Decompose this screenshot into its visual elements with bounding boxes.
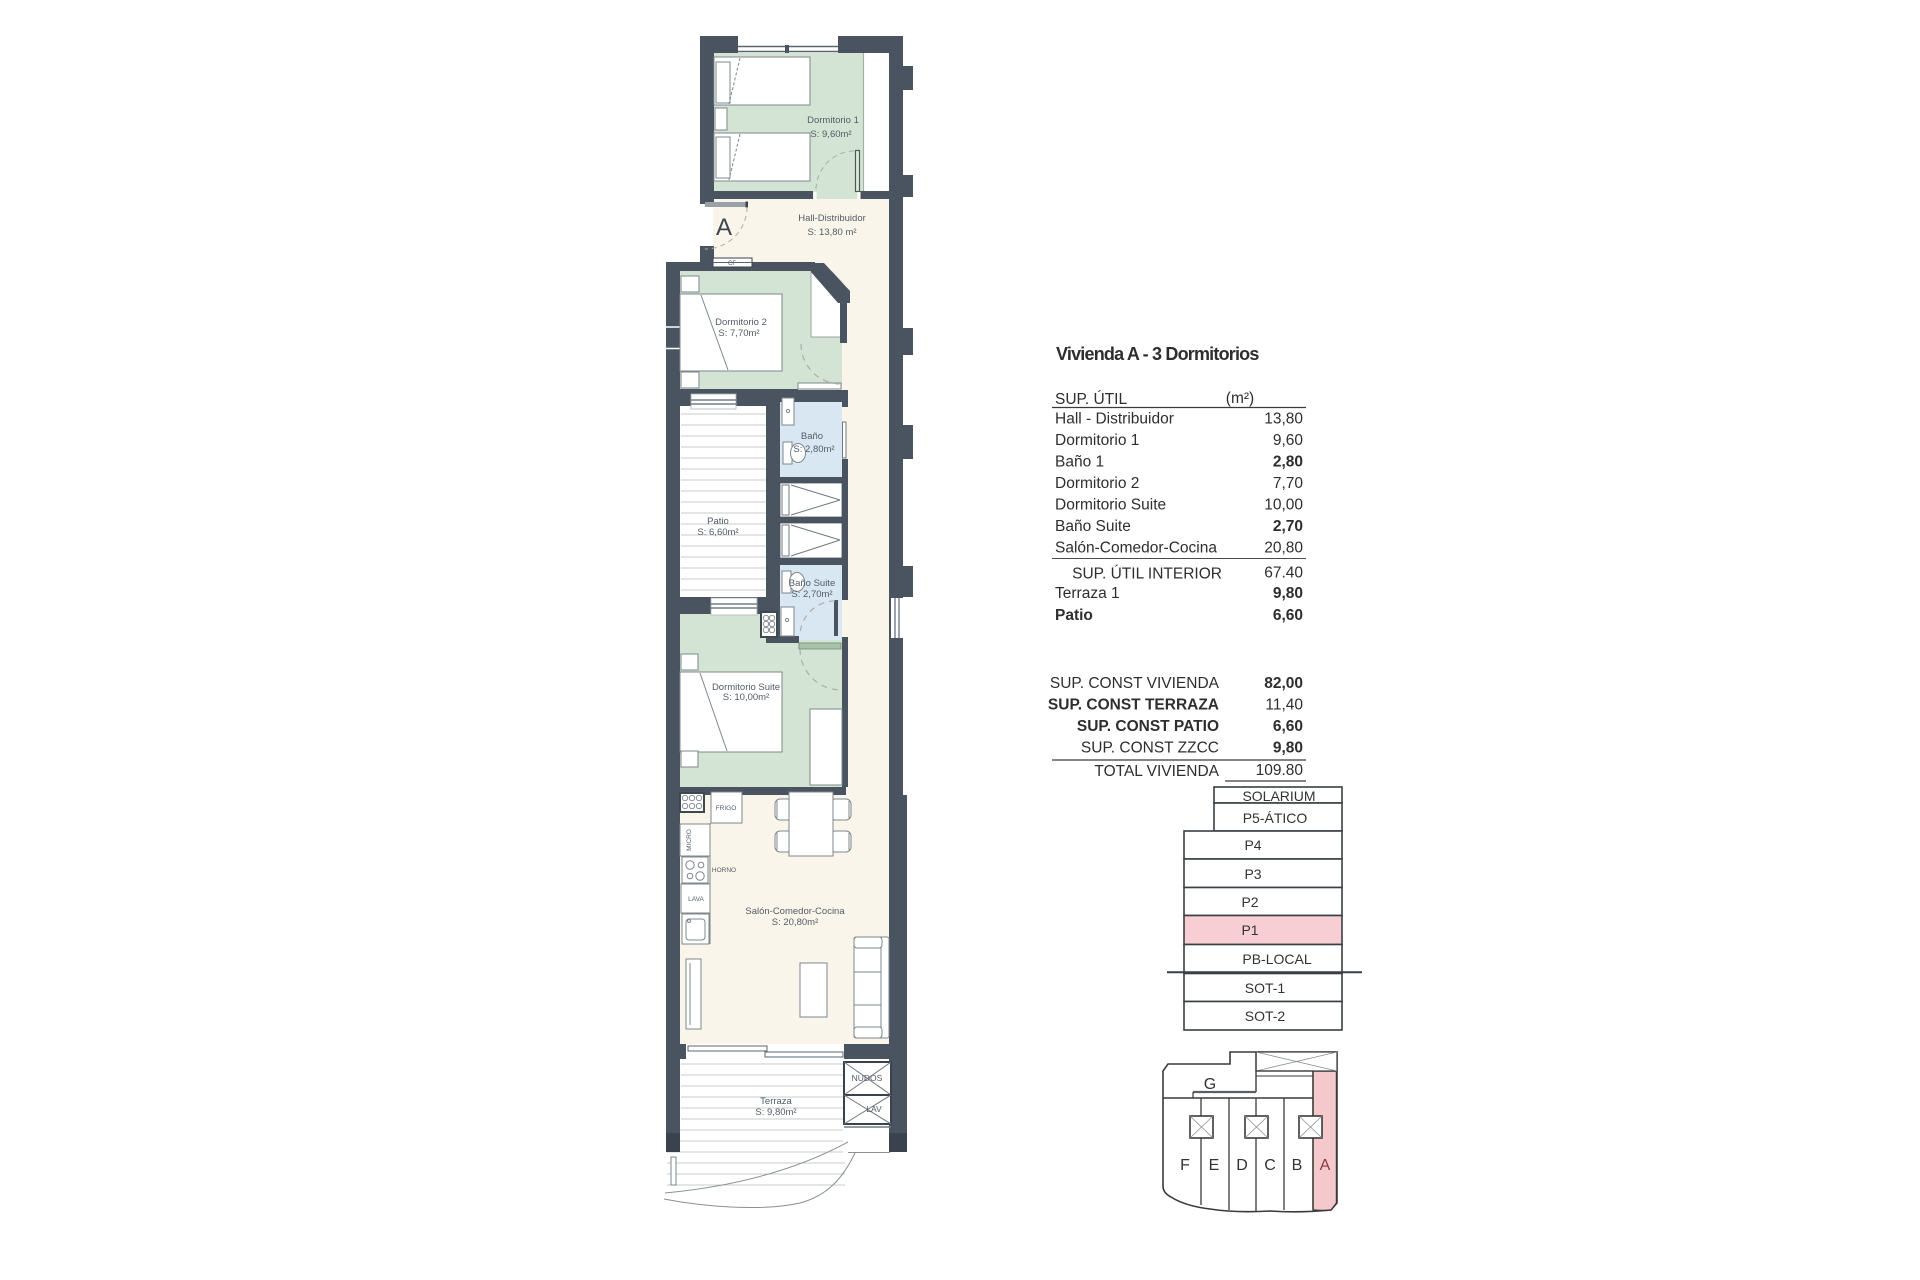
svg-text:P2: P2 [1241, 894, 1258, 910]
svg-text:Dormitorio 2: Dormitorio 2 [1055, 475, 1139, 492]
svg-text:Baño 1: Baño 1 [1055, 454, 1104, 471]
svg-text:P4: P4 [1244, 837, 1261, 853]
svg-text:HORNO: HORNO [712, 867, 736, 874]
svg-text:Dormitorio 1: Dormitorio 1 [807, 115, 859, 126]
svg-text:109.80: 109.80 [1256, 762, 1304, 779]
svg-text:SUP. CONST ZZCC: SUP. CONST ZZCC [1081, 740, 1219, 757]
svg-text:D: D [1236, 1157, 1248, 1174]
svg-text:9,80: 9,80 [1273, 585, 1303, 602]
svg-text:Hall - Distribuidor: Hall - Distribuidor [1055, 411, 1174, 428]
svg-text:SUP. ÚTIL INTERIOR: SUP. ÚTIL INTERIOR [1072, 566, 1222, 583]
svg-text:6,60: 6,60 [1273, 607, 1303, 624]
svg-text:S: 10,00m²: S: 10,00m² [723, 692, 769, 703]
svg-text:67.40: 67.40 [1264, 565, 1303, 582]
svg-text:SOT-2: SOT-2 [1245, 1008, 1286, 1024]
svg-text:S: 9,80m²: S: 9,80m² [755, 1107, 796, 1118]
svg-text:A: A [716, 214, 732, 241]
svg-text:CF: CF [728, 261, 736, 267]
svg-text:Baño Suite: Baño Suite [1055, 518, 1131, 535]
svg-text:S: 6,60m²: S: 6,60m² [697, 527, 738, 538]
svg-text:Baño Suite: Baño Suite [789, 578, 835, 589]
svg-text:SUP. CONST PATIO: SUP. CONST PATIO [1077, 718, 1219, 735]
svg-text:Dormitorio 2: Dormitorio 2 [715, 317, 767, 328]
svg-text:20,80: 20,80 [1264, 540, 1303, 557]
svg-text:SOLARIUM: SOLARIUM [1242, 788, 1315, 804]
svg-text:LAVA: LAVA [688, 896, 704, 903]
svg-text:Patio: Patio [1055, 607, 1093, 624]
svg-text:F: F [1180, 1157, 1190, 1174]
svg-text:SOT-1: SOT-1 [1245, 980, 1286, 996]
svg-text:SUP. ÚTIL: SUP. ÚTIL [1055, 391, 1127, 408]
svg-text:Dormitorio 1: Dormitorio 1 [1055, 432, 1139, 449]
svg-text:6,60: 6,60 [1273, 718, 1303, 735]
svg-text:LAV: LAV [866, 1104, 882, 1114]
svg-text:11,40: 11,40 [1265, 697, 1303, 714]
svg-text:Patio: Patio [707, 516, 729, 527]
svg-text:Baño: Baño [801, 431, 823, 442]
svg-text:S: 20,80m²: S: 20,80m² [772, 917, 818, 928]
svg-text:Hall-Distribuidor: Hall-Distribuidor [798, 213, 866, 224]
svg-text:MICRO: MICRO [686, 829, 693, 851]
svg-text:Dormitorio Suite: Dormitorio Suite [1055, 497, 1166, 514]
svg-text:SUP. CONST VIVIENDA: SUP. CONST VIVIENDA [1050, 675, 1220, 692]
svg-text:9,80: 9,80 [1273, 740, 1303, 757]
svg-text:PB-LOCAL: PB-LOCAL [1242, 951, 1311, 967]
svg-text:G: G [1204, 1076, 1216, 1093]
svg-text:2,70: 2,70 [1273, 518, 1303, 535]
svg-text:S: 13,80 m²: S: 13,80 m² [807, 227, 856, 238]
svg-text:7,70: 7,70 [1273, 475, 1304, 492]
svg-text:82,00: 82,00 [1264, 675, 1303, 692]
svg-text:P5-ÁTICO: P5-ÁTICO [1243, 810, 1308, 826]
svg-text:9,60: 9,60 [1273, 432, 1304, 449]
svg-text:TOTAL VIVIENDA: TOTAL VIVIENDA [1094, 763, 1219, 780]
svg-text:P3: P3 [1244, 866, 1261, 882]
svg-text:C: C [1264, 1157, 1276, 1174]
svg-text:S: 2,80m²: S: 2,80m² [793, 444, 834, 455]
svg-text:Terraza 1: Terraza 1 [1055, 585, 1120, 602]
svg-text:FRIGO: FRIGO [716, 805, 737, 812]
svg-text:P1: P1 [1241, 922, 1258, 938]
svg-text:Terraza: Terraza [760, 1096, 792, 1107]
svg-text:SUP. CONST TERRAZA: SUP. CONST TERRAZA [1048, 697, 1219, 714]
svg-text:13,80: 13,80 [1264, 411, 1303, 428]
svg-text:Salón-Comedor-Cocina: Salón-Comedor-Cocina [1055, 540, 1217, 557]
svg-text:Salón-Comedor-Cocina: Salón-Comedor-Cocina [745, 906, 845, 917]
svg-text:NUDOS: NUDOS [852, 1073, 883, 1083]
svg-text:10,00: 10,00 [1264, 497, 1303, 514]
svg-text:Vivienda A - 3 Dormitorios: Vivienda A - 3 Dormitorios [1056, 344, 1259, 364]
svg-text:S: 9,60m²: S: 9,60m² [810, 129, 851, 140]
svg-text:2,80: 2,80 [1273, 454, 1303, 471]
svg-text:S: 7,70m²: S: 7,70m² [718, 328, 759, 339]
svg-text:(m²): (m²) [1226, 390, 1254, 407]
svg-text:E: E [1209, 1157, 1220, 1174]
svg-text:A: A [1320, 1157, 1331, 1174]
svg-text:B: B [1292, 1157, 1303, 1174]
svg-text:S: 2,70m²: S: 2,70m² [791, 589, 832, 600]
